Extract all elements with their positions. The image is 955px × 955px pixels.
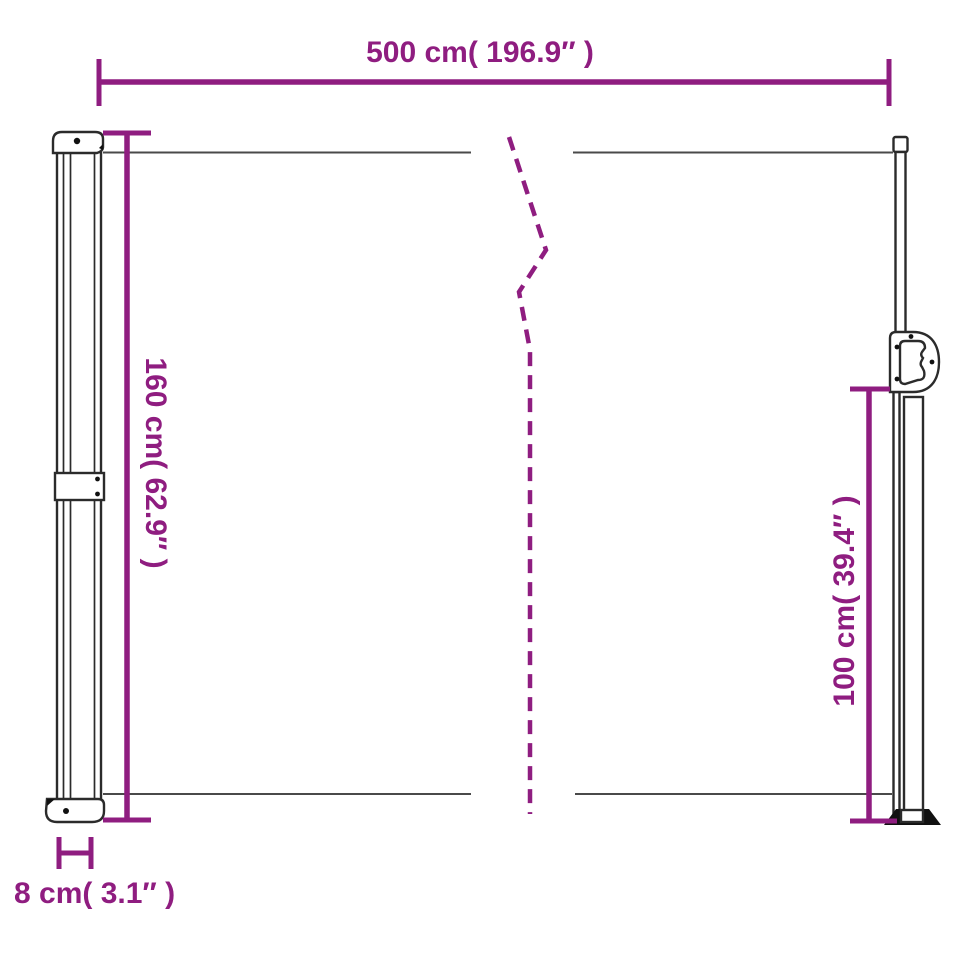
depth-dimension-label: 8 cm( 3.1″ ) <box>14 879 175 909</box>
top-cap-screw <box>74 138 80 144</box>
fabric-fold-dashed-line <box>509 137 546 814</box>
depth-dimension <box>59 837 91 869</box>
left-height-dimension-label: 160 cm( 62.9″ ) <box>140 357 170 568</box>
pole-lower-rail <box>894 392 900 814</box>
left-cassette-pole <box>46 132 104 822</box>
pole-top-cap <box>894 137 908 152</box>
right-support-pole <box>884 137 941 825</box>
cassette-bottom-cap <box>46 799 104 822</box>
dimension-diagram: 500 cm( 196.9″ ) 160 cm( 62.9″ ) 100 cm(… <box>0 0 955 955</box>
right-height-dimension-label: 100 cm( 39.4″ ) <box>830 495 860 706</box>
pole-upper-tube <box>896 152 906 333</box>
pole-lower-tube <box>904 397 923 812</box>
bottom-cap-screw <box>63 808 69 814</box>
pole-foot-plate <box>901 810 923 822</box>
handle-grip-cutout <box>900 341 925 384</box>
width-dimension-label: 500 cm( 196.9″ ) <box>366 38 594 68</box>
